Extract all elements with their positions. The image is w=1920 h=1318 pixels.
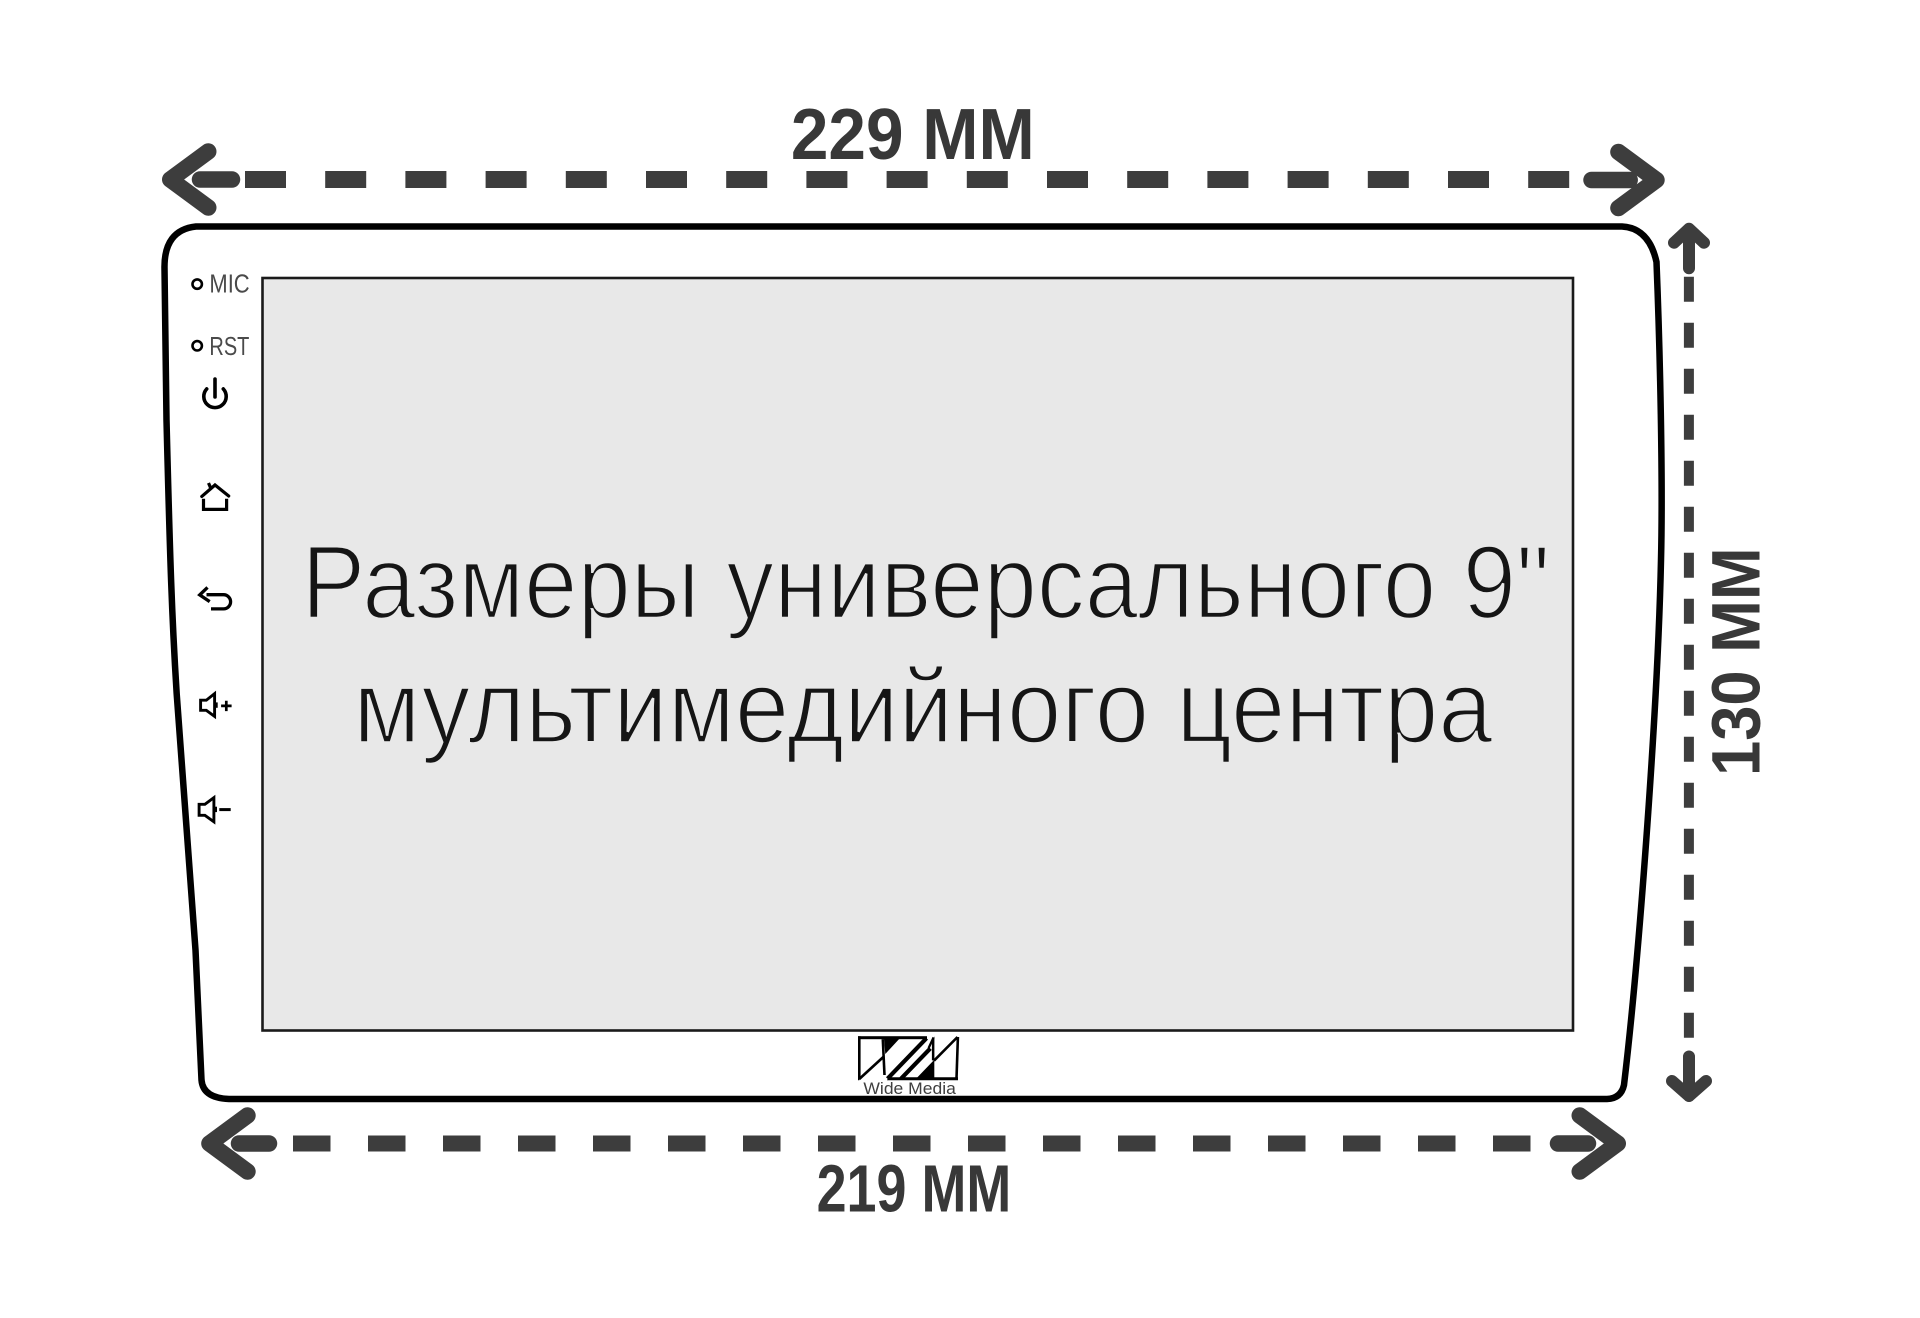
svg-text:RST: RST: [209, 333, 249, 361]
svg-text:229 MM: 229 MM: [791, 95, 1035, 175]
svg-text:MIC: MIC: [209, 271, 249, 299]
svg-text:Размеры универсального 9": Размеры универсального 9": [302, 525, 1551, 641]
svg-text:219 MM: 219 MM: [817, 1153, 1012, 1227]
svg-text:130 MM: 130 MM: [1699, 547, 1775, 776]
svg-text:Wide Media: Wide Media: [863, 1080, 956, 1098]
svg-text:мультимедийного центра: мультимедийного центра: [353, 650, 1492, 766]
